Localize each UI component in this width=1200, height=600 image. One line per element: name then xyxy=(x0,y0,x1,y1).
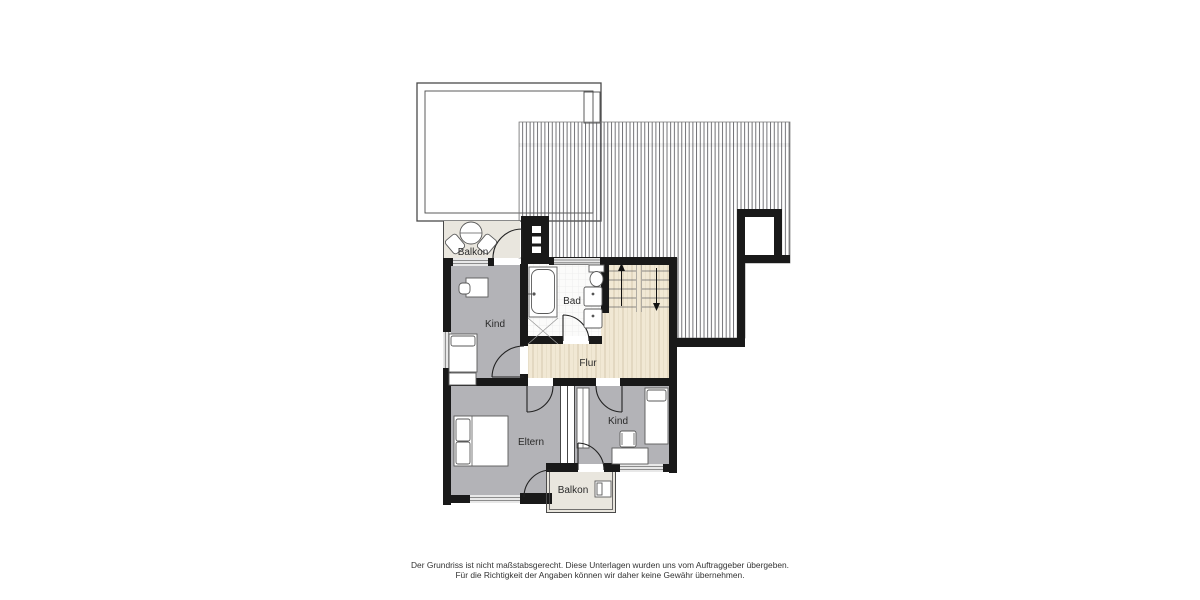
wall xyxy=(488,258,494,266)
chimney-flue xyxy=(532,226,541,233)
wall xyxy=(737,209,745,347)
room-label-eltern: Eltern xyxy=(518,437,544,448)
chair-icon xyxy=(459,283,470,294)
wall xyxy=(520,264,528,346)
wall xyxy=(669,338,745,347)
chimney-flue xyxy=(532,247,541,254)
wall xyxy=(669,258,677,473)
wall xyxy=(663,464,677,472)
room-label-kind-left: Kind xyxy=(485,319,505,330)
wall xyxy=(546,463,578,472)
wall xyxy=(443,258,451,332)
balcony-door-threshold xyxy=(520,493,552,504)
disclaimer-line-1: Der Grundriss ist nicht maßstabsgerecht.… xyxy=(411,560,789,570)
washbasin-icon xyxy=(584,287,602,306)
chimney-flue xyxy=(532,237,541,244)
window xyxy=(453,258,488,266)
terrace-post xyxy=(584,92,600,123)
wall xyxy=(443,368,451,505)
toilet-icon xyxy=(589,265,604,287)
wall xyxy=(443,258,453,266)
window xyxy=(470,495,520,503)
balcony-chair-icon xyxy=(595,481,611,497)
wardrobe-icon xyxy=(577,388,589,448)
wall xyxy=(528,336,563,344)
window xyxy=(554,258,600,265)
room-label-balkon-top: Balkon xyxy=(458,247,489,258)
room-label-flur: Flur xyxy=(579,358,597,369)
wall xyxy=(620,378,677,386)
round-table-icon xyxy=(460,222,482,244)
wall xyxy=(737,255,790,263)
room-label-kind-right: Kind xyxy=(608,416,628,427)
roof-ridge-shadow xyxy=(519,143,790,147)
room-label-balkon-bottom: Balkon xyxy=(558,485,589,496)
single-bed-icon xyxy=(645,388,668,444)
roof-notch xyxy=(745,217,774,255)
washbasin-icon xyxy=(584,309,602,328)
double-bed-icon xyxy=(454,416,508,466)
floor-plan-canvas: Balkon Kind Bad Flur Eltern Kind Balkon … xyxy=(0,0,1200,600)
disclaimer-line-2: Für die Richtigkeit der Angaben können w… xyxy=(455,570,744,580)
single-bed-icon xyxy=(449,334,477,385)
wall xyxy=(443,495,470,503)
partition-eltern-kind xyxy=(560,386,575,463)
window xyxy=(620,464,663,472)
wall xyxy=(553,378,596,386)
floor-plan-page: Balkon Kind Bad Flur Eltern Kind Balkon … xyxy=(0,0,1200,600)
wall xyxy=(589,336,602,344)
room-label-bad: Bad xyxy=(563,296,581,307)
wall xyxy=(774,209,782,263)
desk-icon xyxy=(612,448,648,464)
disclaimer: Der Grundriss ist nicht maßstabsgerecht.… xyxy=(411,560,789,580)
bathtub-icon xyxy=(528,267,557,317)
chair-icon xyxy=(620,431,636,447)
